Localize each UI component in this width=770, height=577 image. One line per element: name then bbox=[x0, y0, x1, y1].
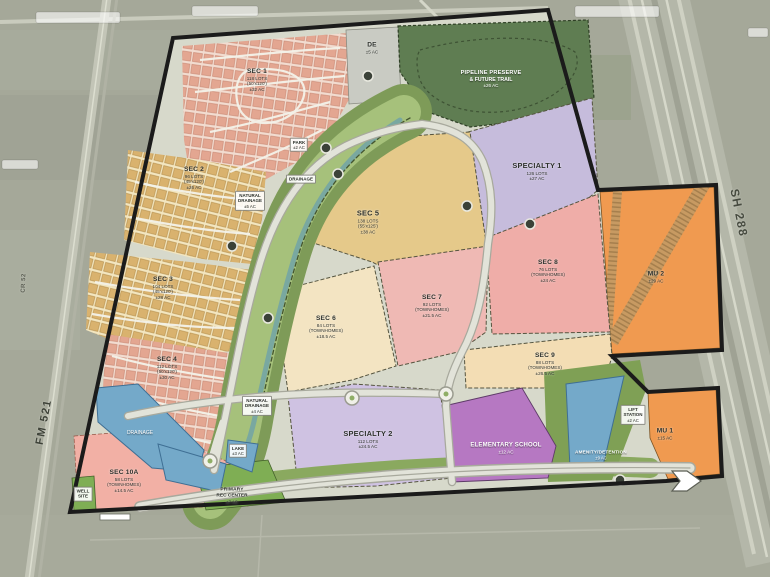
site-plan-canvas bbox=[0, 0, 770, 577]
scale-bar bbox=[100, 514, 130, 520]
master-plan-map: SEC 1118 LOTS(50'x120')±32 AC SEC 296 LO… bbox=[0, 0, 770, 577]
